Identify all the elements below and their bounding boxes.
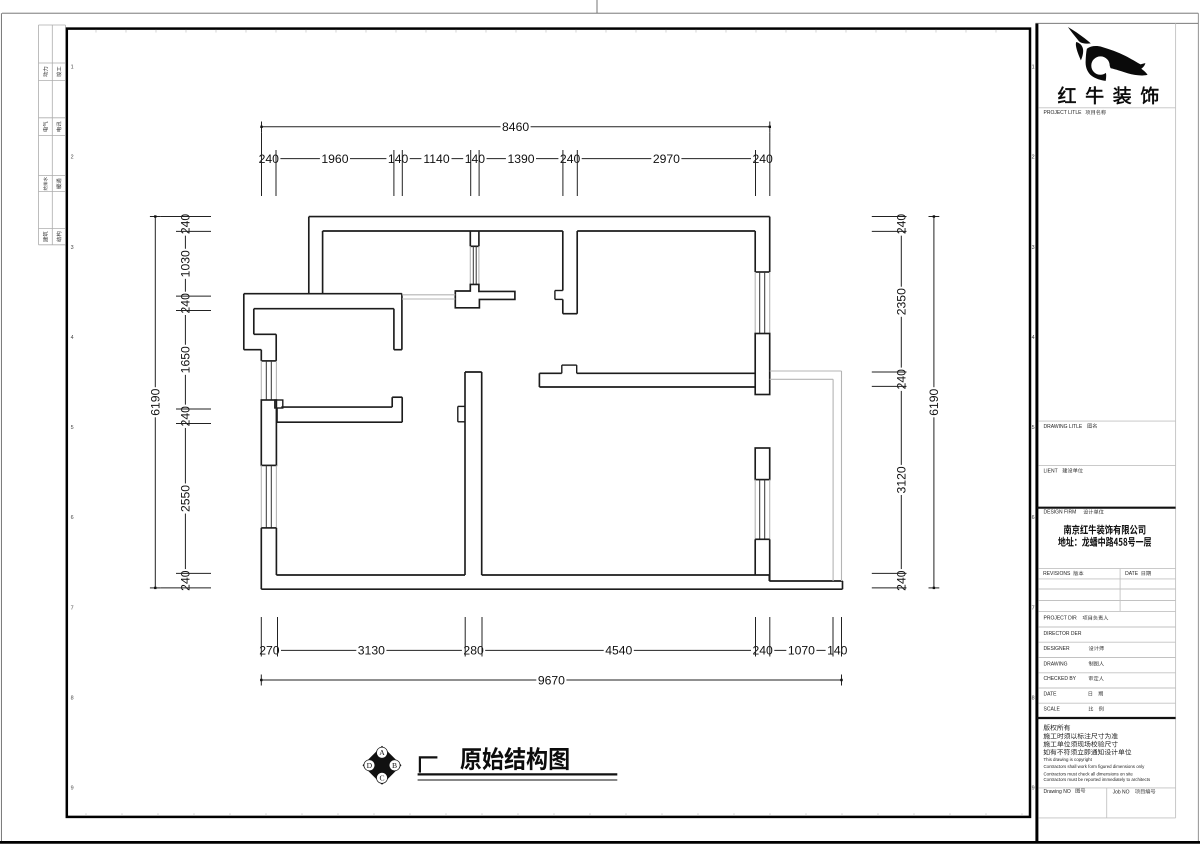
svg-text:9: 9	[71, 786, 74, 792]
svg-text:DRAWING LITLE: DRAWING LITLE	[1044, 424, 1083, 430]
svg-text:7: 7	[1032, 605, 1035, 611]
svg-text:5: 5	[1032, 425, 1035, 431]
svg-text:4: 4	[71, 335, 74, 341]
svg-text:1650: 1650	[179, 346, 193, 373]
svg-text:CHECKED BY: CHECKED BY	[1044, 676, 1077, 682]
svg-text:3: 3	[1032, 245, 1035, 251]
svg-text:A: A	[379, 748, 385, 757]
svg-text:1: 1	[71, 65, 74, 71]
svg-text:6190: 6190	[927, 388, 941, 415]
svg-text:C: C	[379, 773, 384, 782]
svg-text:1390: 1390	[507, 152, 534, 166]
svg-text:Job NO: Job NO	[1113, 789, 1130, 795]
svg-text:DESIGNER: DESIGNER	[1044, 646, 1071, 652]
svg-text:4: 4	[1032, 335, 1035, 341]
svg-text:2550: 2550	[179, 485, 193, 512]
svg-text:3130: 3130	[358, 644, 385, 658]
svg-text:280: 280	[463, 644, 484, 658]
svg-text:8: 8	[71, 696, 74, 702]
svg-text:9670: 9670	[538, 673, 565, 687]
svg-text:SCALE: SCALE	[1044, 707, 1061, 713]
svg-text:PROJECT LITLE: PROJECT LITLE	[1044, 110, 1083, 116]
svg-text:2350: 2350	[895, 288, 909, 315]
svg-text:DRAWING: DRAWING	[1044, 661, 1068, 667]
svg-text:6190: 6190	[149, 388, 163, 415]
svg-text:8: 8	[1032, 696, 1035, 702]
svg-text:140: 140	[827, 644, 848, 658]
svg-text:270: 270	[259, 644, 280, 658]
svg-text:4540: 4540	[605, 644, 632, 658]
svg-text:6: 6	[71, 515, 74, 521]
svg-text:8460: 8460	[502, 120, 529, 134]
svg-text:1140: 1140	[423, 152, 449, 166]
svg-text:B: B	[392, 761, 397, 770]
svg-text:1: 1	[1032, 65, 1035, 71]
svg-text:1960: 1960	[321, 152, 348, 166]
svg-text:This drawing is copyright: This drawing is copyright	[1044, 757, 1093, 762]
svg-text:DESIGN FIRM: DESIGN FIRM	[1044, 510, 1077, 516]
svg-text:DATE: DATE	[1125, 571, 1139, 577]
svg-text:3: 3	[71, 245, 74, 251]
svg-text:140: 140	[465, 152, 486, 166]
svg-text:DIRECTOR DER: DIRECTOR DER	[1044, 631, 1082, 637]
svg-text:7: 7	[71, 605, 74, 611]
svg-text:6: 6	[1032, 515, 1035, 521]
svg-text:1030: 1030	[179, 250, 193, 277]
svg-text:PROJECT DIR: PROJECT DIR	[1044, 616, 1078, 622]
svg-text:2970: 2970	[653, 152, 680, 166]
svg-text:D: D	[367, 761, 373, 770]
svg-text:Drawing NO: Drawing NO	[1044, 789, 1071, 795]
svg-text:LIENT: LIENT	[1044, 468, 1058, 474]
svg-text:9: 9	[1032, 786, 1035, 792]
svg-text:REVISIONS: REVISIONS	[1043, 571, 1071, 577]
svg-text:Contractors must be reported i: Contractors must be reported immediately…	[1044, 777, 1151, 782]
svg-text:5: 5	[71, 425, 74, 431]
svg-text:140: 140	[388, 152, 409, 166]
svg-text:2: 2	[71, 155, 74, 161]
svg-text:2: 2	[1032, 155, 1035, 161]
svg-text:Contractors must check all dim: Contractors must check all dimensions on…	[1044, 771, 1134, 776]
svg-text:3120: 3120	[895, 466, 909, 493]
svg-text:Contractors shall work form fi: Contractors shall work form figured dime…	[1044, 764, 1146, 769]
svg-text:1070: 1070	[788, 644, 815, 658]
svg-text:DATE: DATE	[1044, 691, 1058, 697]
